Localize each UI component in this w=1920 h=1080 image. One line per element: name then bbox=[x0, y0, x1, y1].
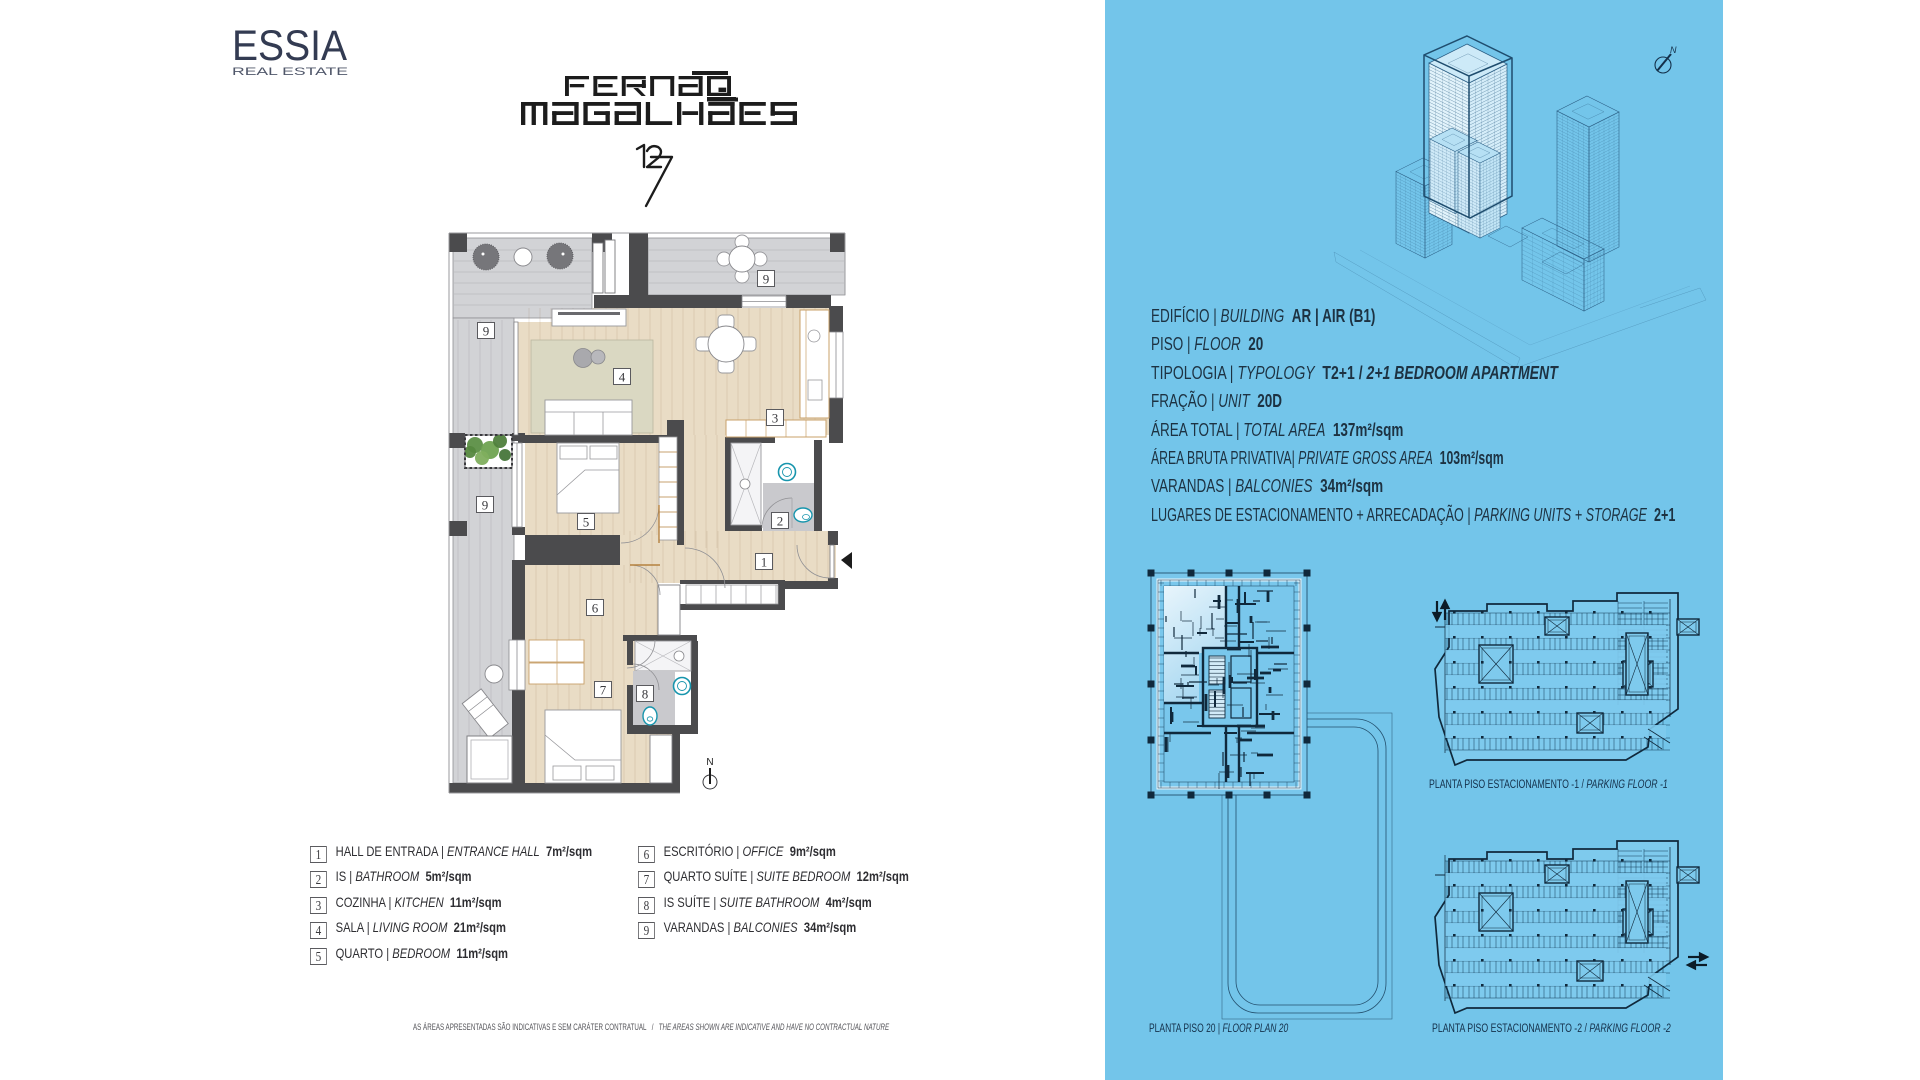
svg-text:6: 6 bbox=[592, 601, 599, 616]
svg-text:5: 5 bbox=[583, 515, 590, 530]
svg-text:9: 9 bbox=[482, 498, 489, 513]
svg-text:3: 3 bbox=[772, 411, 779, 426]
svg-text:4: 4 bbox=[619, 370, 626, 385]
svg-text:N: N bbox=[1670, 45, 1677, 55]
svg-text:7: 7 bbox=[600, 683, 607, 698]
svg-text:2: 2 bbox=[777, 514, 784, 529]
svg-text:9: 9 bbox=[483, 324, 490, 339]
svg-text:N: N bbox=[706, 757, 713, 768]
svg-text:8: 8 bbox=[642, 687, 649, 702]
svg-text:9: 9 bbox=[763, 272, 770, 287]
svg-text:1: 1 bbox=[761, 555, 768, 570]
